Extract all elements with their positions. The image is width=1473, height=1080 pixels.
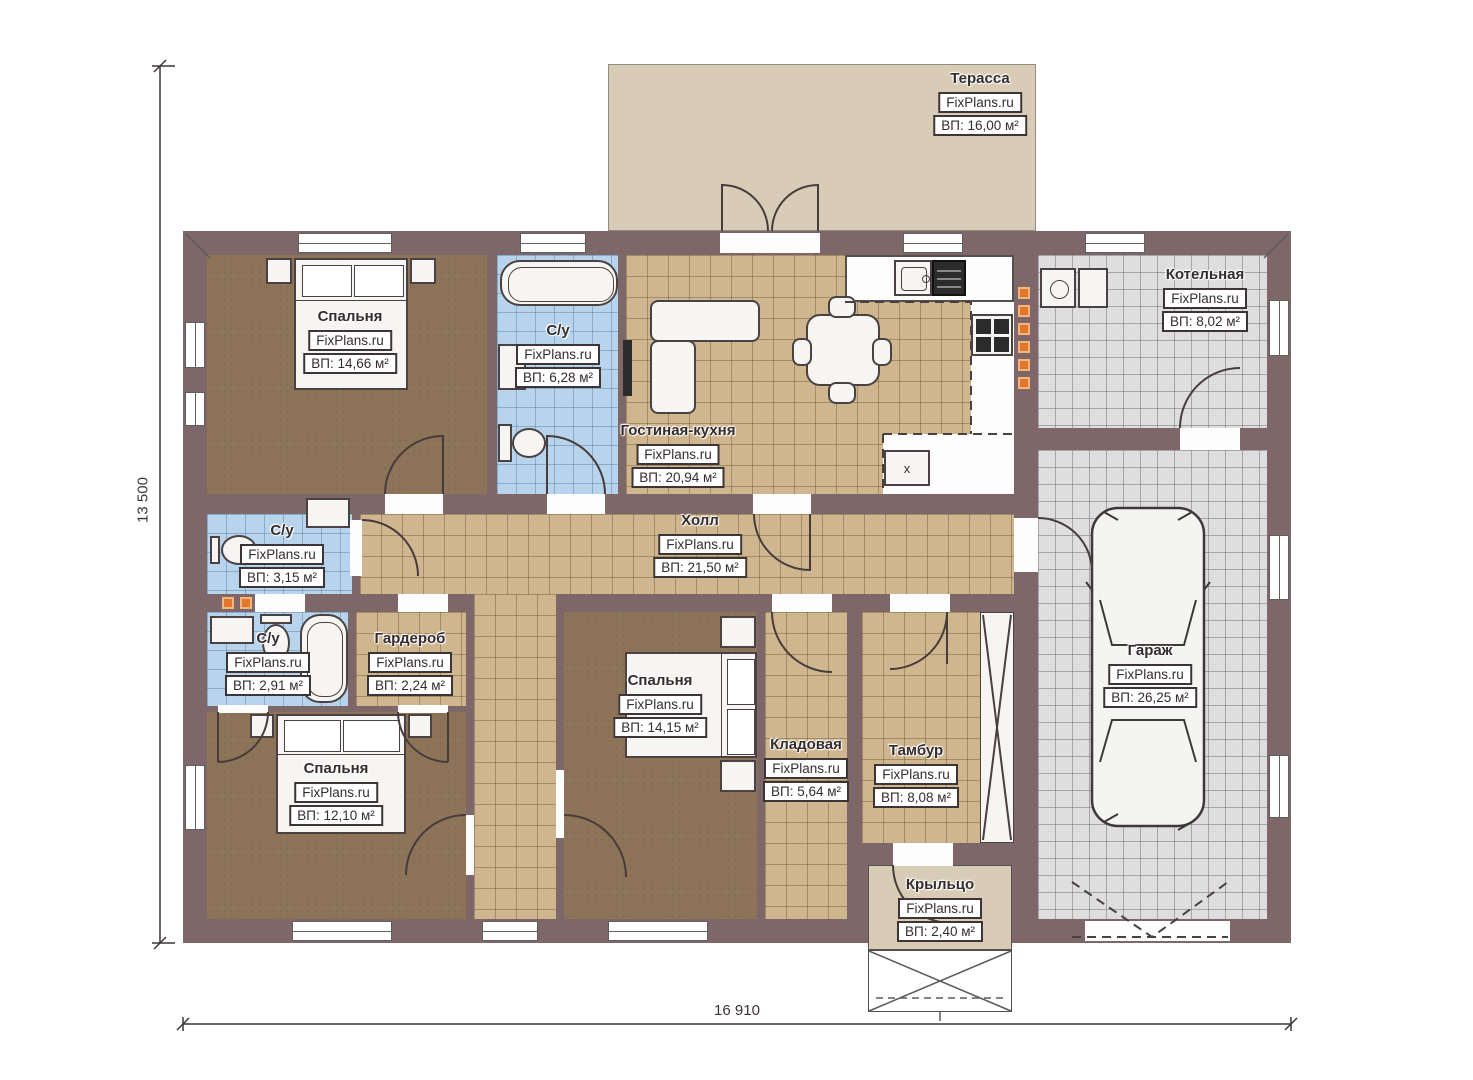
watermark: FixPlans.ru bbox=[764, 758, 848, 779]
watermark: FixPlans.ru bbox=[618, 694, 702, 715]
watermark: FixPlans.ru bbox=[226, 652, 310, 673]
watermark: FixPlans.ru bbox=[368, 652, 452, 673]
room-label-bath-2: С/у FixPlans.ru ВП: 3,15 м² bbox=[239, 522, 325, 588]
room-area: ВП: 12,10 м² bbox=[289, 805, 383, 826]
watermark: FixPlans.ru bbox=[938, 92, 1022, 113]
dimension-height: 13 500 bbox=[135, 477, 152, 523]
room-label-boiler: Котельная FixPlans.ru ВП: 8,02 м² bbox=[1162, 266, 1248, 332]
floor-plan: x bbox=[0, 0, 1473, 1080]
room-label-bedroom-2: Спальня FixPlans.ru ВП: 14,15 м² bbox=[613, 672, 707, 738]
watermark: FixPlans.ru bbox=[898, 898, 982, 919]
room-label-terrace: Терасса FixPlans.ru ВП: 16,00 м² bbox=[933, 70, 1027, 136]
room-label-bath-1: С/у FixPlans.ru ВП: 6,28 м² bbox=[515, 322, 601, 388]
room-label-porch: Крыльцо FixPlans.ru ВП: 2,40 м² bbox=[897, 876, 983, 942]
room-area: ВП: 8,08 м² bbox=[873, 787, 959, 808]
room-area: ВП: 14,15 м² bbox=[613, 717, 707, 738]
watermark: FixPlans.ru bbox=[658, 534, 742, 555]
watermark: FixPlans.ru bbox=[240, 544, 324, 565]
room-area: ВП: 6,28 м² bbox=[515, 367, 601, 388]
room-area: ВП: 8,02 м² bbox=[1162, 311, 1248, 332]
room-area: ВП: 26,25 м² bbox=[1103, 687, 1197, 708]
room-label-bedroom-3: Спальня FixPlans.ru ВП: 12,10 м² bbox=[289, 760, 383, 826]
watermark: FixPlans.ru bbox=[636, 444, 720, 465]
watermark: FixPlans.ru bbox=[1108, 664, 1192, 685]
room-label-living: Гостиная-кухня FixPlans.ru ВП: 20,94 м² bbox=[621, 422, 736, 488]
room-area: ВП: 14,66 м² bbox=[303, 353, 397, 374]
dimension-width: 16 910 bbox=[714, 1002, 760, 1019]
room-label-storage: Кладовая FixPlans.ru ВП: 5,64 м² bbox=[763, 736, 849, 802]
room-area: ВП: 5,64 м² bbox=[763, 781, 849, 802]
room-area: ВП: 3,15 м² bbox=[239, 567, 325, 588]
room-label-hall: Холл FixPlans.ru ВП: 21,50 м² bbox=[653, 512, 747, 578]
room-area: ВП: 2,24 м² bbox=[367, 675, 453, 696]
room-area: ВП: 20,94 м² bbox=[631, 467, 725, 488]
room-label-wardrobe: Гардероб FixPlans.ru ВП: 2,24 м² bbox=[367, 630, 453, 696]
room-area: ВП: 16,00 м² bbox=[933, 115, 1027, 136]
room-area: ВП: 2,91 м² bbox=[225, 675, 311, 696]
watermark: FixPlans.ru bbox=[294, 782, 378, 803]
watermark: FixPlans.ru bbox=[1163, 288, 1247, 309]
room-label-garage: Гараж FixPlans.ru ВП: 26,25 м² bbox=[1103, 642, 1197, 708]
room-area: ВП: 2,40 м² bbox=[897, 921, 983, 942]
room-label-bedroom-1: Спальня FixPlans.ru ВП: 14,66 м² bbox=[303, 308, 397, 374]
watermark: FixPlans.ru bbox=[874, 764, 958, 785]
watermark: FixPlans.ru bbox=[308, 330, 392, 351]
room-label-bath-3: С/у FixPlans.ru ВП: 2,91 м² bbox=[225, 630, 311, 696]
watermark: FixPlans.ru bbox=[516, 344, 600, 365]
room-area: ВП: 21,50 м² bbox=[653, 557, 747, 578]
room-label-vestibule: Тамбур FixPlans.ru ВП: 8,08 м² bbox=[873, 742, 959, 808]
